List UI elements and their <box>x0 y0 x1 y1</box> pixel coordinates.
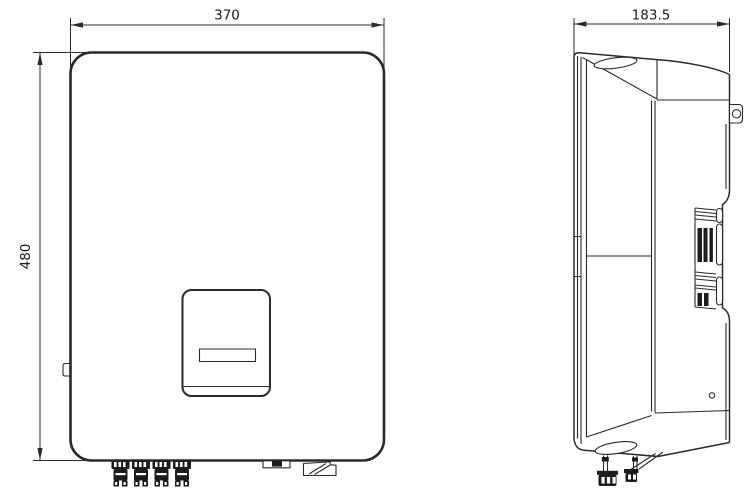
enclosure-front-outline <box>71 53 385 461</box>
display-panel <box>183 290 271 396</box>
mc4-connector-4 <box>173 461 191 487</box>
front-view: 370 480 <box>18 8 384 487</box>
display-panel-outline <box>183 290 271 396</box>
heatsink-rail-bottom <box>717 277 723 305</box>
heatsink-rail-top <box>717 209 723 223</box>
display-window <box>200 349 256 362</box>
ac-gland <box>304 462 337 476</box>
width-label: 370 <box>214 8 240 24</box>
side-plug-right <box>624 469 639 482</box>
mc4-connector-2 <box>132 461 150 487</box>
depth-label: 183.5 <box>632 8 671 24</box>
inverter-dimension-drawing: 370 480 <box>0 0 750 500</box>
height-label: 480 <box>18 244 34 270</box>
mc4-connector-1 <box>112 461 130 487</box>
mounting-bracket <box>730 105 743 124</box>
heatsink-rail-mid <box>717 224 723 265</box>
case-screw <box>709 393 714 398</box>
top-handle-slot <box>594 55 638 71</box>
side-plug-left <box>597 471 618 486</box>
drawing-svg: 370 480 <box>0 0 750 500</box>
mc4-connector-3 <box>153 461 171 487</box>
heatsink <box>695 208 723 309</box>
bracket-hole <box>732 110 740 118</box>
side-view: 183.5 <box>574 8 743 487</box>
comm-port <box>263 461 290 468</box>
side-bottom-connectors <box>597 452 663 486</box>
dc-input-connectors <box>112 461 192 487</box>
